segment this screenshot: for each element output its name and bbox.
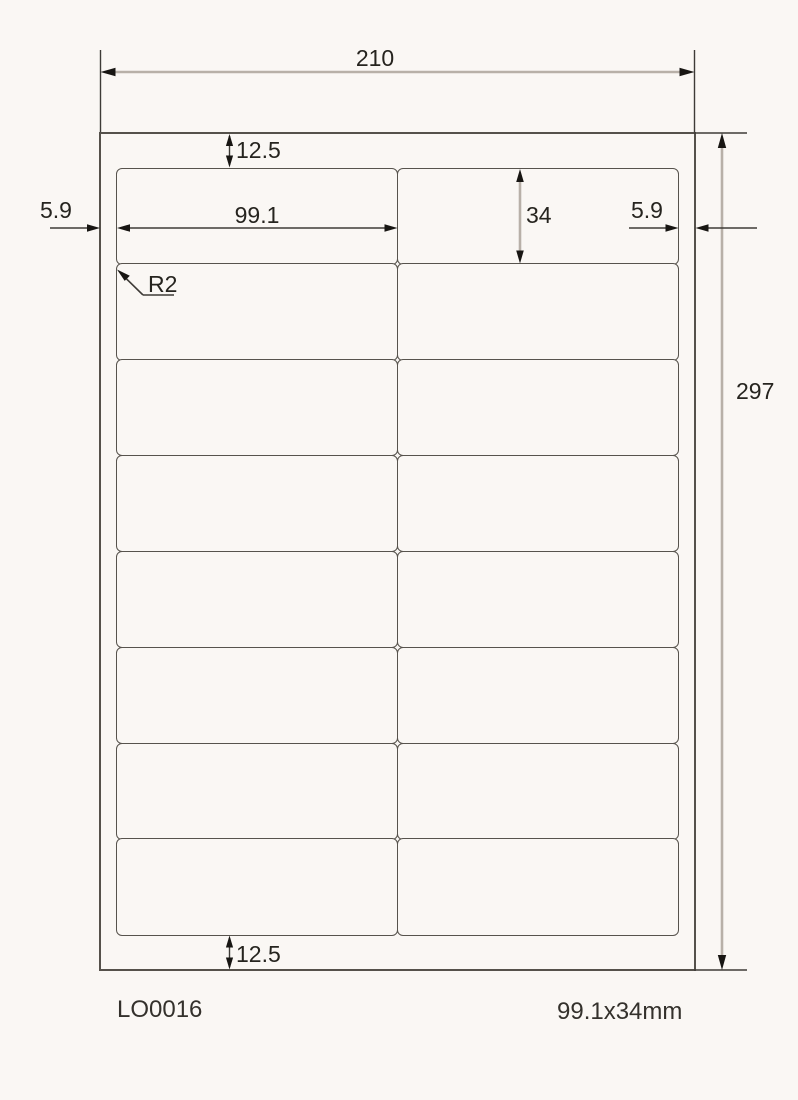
label-cell [116, 743, 398, 840]
arrowhead-left-icon [101, 68, 116, 76]
dim-left-margin [50, 224, 100, 232]
label-cell [397, 263, 679, 360]
label-cell [397, 359, 679, 456]
dim-sheet-height [694, 133, 747, 970]
label-cell [116, 551, 398, 648]
dim-label-height-text: 34 [526, 203, 552, 227]
label-cell [116, 838, 398, 935]
dim-label-width-text: 99.1 [222, 203, 292, 227]
label-cell [397, 551, 679, 648]
label-cell [116, 647, 398, 744]
dim-top-margin-text: 12.5 [236, 138, 281, 162]
label-size-text: 99.1x34mm [557, 999, 682, 1024]
arrowhead-down-icon [718, 955, 726, 970]
arrowhead-up-icon [718, 133, 726, 148]
label-cell [397, 743, 679, 840]
technical-drawing-canvas: 210 297 12.5 12.5 99.1 34 5.9 5.9 R2 LO0… [0, 0, 798, 1100]
dim-left-margin-text: 5.9 [40, 198, 72, 222]
label-cell [116, 359, 398, 456]
corner-radius-text: R2 [148, 272, 177, 296]
label-cell [397, 838, 679, 935]
dim-right-margin-text: 5.9 [631, 198, 663, 222]
label-cell [397, 647, 679, 744]
arrowhead-right-icon [680, 68, 695, 76]
arrowhead-left-icon [696, 224, 709, 232]
product-code-text: LO0016 [117, 997, 202, 1022]
label-cell [116, 455, 398, 552]
dim-bottom-margin-text: 12.5 [236, 942, 281, 966]
label-cell [397, 455, 679, 552]
dim-sheet-width-text: 210 [340, 46, 410, 70]
dim-sheet-height-text: 297 [736, 379, 774, 403]
